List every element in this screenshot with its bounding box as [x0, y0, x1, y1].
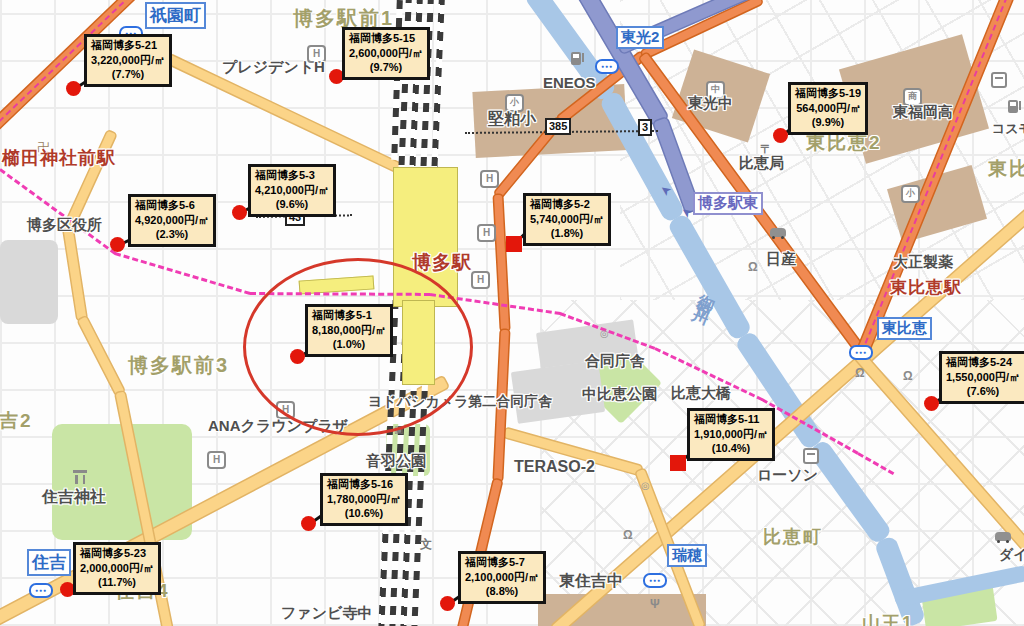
subway-line	[115, 252, 251, 295]
price-point-marker[interactable]	[773, 128, 788, 143]
station-name-label: 東比恵駅	[890, 276, 962, 299]
callout-change-rate: (11.7%)	[80, 575, 154, 590]
poi-label: ダイハツ	[999, 546, 1024, 564]
callout-price: 2,600,000円/㎡	[349, 46, 423, 61]
station-badge-東光2[interactable]: 東光2	[616, 26, 664, 49]
station-badge-祇園町[interactable]: 祇園町	[145, 2, 206, 29]
callout-price: 1,550,000円/㎡	[946, 370, 1020, 385]
building-block	[0, 240, 58, 324]
area-name-label: 比恵町	[763, 525, 823, 549]
area-name-label: 東比恵	[988, 156, 1024, 182]
river-segment	[666, 213, 752, 342]
car-dealer-icon	[770, 228, 786, 237]
restaurant-icon: Ψ	[650, 597, 660, 611]
callout-site-id: 福岡博多5-11	[694, 412, 768, 427]
land-price-callout[interactable]: 福岡博多5-19564,000円/㎡(9.9%)	[788, 82, 868, 135]
hotel-icon: H	[471, 271, 490, 289]
poi-label: プレジデントH	[222, 58, 325, 77]
callout-site-id: 福岡博多5-1	[312, 308, 386, 323]
callout-price: 564,000円/㎡	[795, 101, 861, 116]
traffic-light-icon	[595, 59, 619, 74]
landmark-icon: ◎	[641, 480, 650, 491]
callout-change-rate: (8.8%)	[465, 584, 539, 599]
callout-change-rate: (10.4%)	[694, 441, 768, 456]
land-price-callout[interactable]: 福岡博多5-34,210,000円/㎡(9.6%)	[248, 164, 336, 217]
land-price-callout[interactable]: 福岡博多5-241,550,000円/㎡(7.6%)	[939, 351, 1024, 404]
callout-site-id: 福岡博多5-16	[327, 477, 401, 492]
poi-label: 比恵局	[739, 154, 784, 173]
land-price-callout[interactable]: 福岡博多5-18,180,000円/㎡(1.0%)	[305, 304, 393, 357]
station-badge-東比恵[interactable]: 東比恵	[877, 317, 932, 340]
route-shield: 3	[638, 119, 652, 136]
callout-site-id: 福岡博多5-15	[349, 31, 423, 46]
land-price-callout[interactable]: 福岡博多5-72,100,000円/㎡(8.8%)	[458, 551, 546, 604]
poi-label: 東光中	[688, 94, 733, 113]
land-price-callout[interactable]: 福岡博多5-232,000,000円/㎡(11.7%)	[73, 542, 161, 595]
callout-change-rate: (9.9%)	[795, 115, 861, 130]
callout-change-rate: (7.7%)	[91, 67, 165, 82]
poi-label: 音羽公園	[366, 452, 426, 471]
callout-site-id: 福岡博多5-24	[946, 355, 1020, 370]
callout-change-rate: (10.6%)	[327, 506, 401, 521]
landmark-icon: ◎	[600, 328, 609, 339]
price-point-marker[interactable]	[924, 396, 939, 411]
poi-label: 比恵大橋	[671, 384, 731, 403]
price-point-marker[interactable]	[301, 516, 316, 531]
poi-label: 合同庁舎	[585, 352, 645, 371]
callout-price: 4,920,000円/㎡	[135, 213, 209, 228]
poi-label: 博多区役所	[27, 216, 102, 235]
shop-icon: Ω	[855, 366, 865, 380]
traffic-light-icon	[849, 345, 873, 360]
callout-price: 2,000,000円/㎡	[80, 561, 154, 576]
callout-change-rate: (1.8%)	[530, 226, 604, 241]
school-symbol-icon: 文	[420, 536, 432, 553]
callout-price: 1,780,000円/㎡	[327, 492, 401, 507]
car-dealer-icon	[995, 532, 1011, 541]
shrine-torii-icon	[73, 470, 87, 484]
price-point-marker[interactable]	[506, 236, 522, 252]
land-price-callout[interactable]: 福岡博多5-213,220,000円/㎡(7.7%)	[84, 34, 172, 87]
callout-site-id: 福岡博多5-21	[91, 38, 165, 53]
poi-label: ファンビ寺中	[281, 604, 372, 623]
station-badge-博多駅東[interactable]: 博多駅東	[693, 192, 763, 215]
poi-label: ENEOS	[543, 74, 596, 91]
price-point-marker[interactable]	[440, 596, 455, 611]
price-point-marker[interactable]	[670, 455, 686, 471]
land-price-map[interactable]: 祇園町東光2博多駅東東比恵瑞穂住吉櫛田神社前駅博多駅東比恵駅博多駅前1博多駅前3…	[0, 0, 1024, 626]
convenience-store-icon	[991, 72, 1007, 88]
callout-price: 5,740,000円/㎡	[530, 212, 604, 227]
callout-price: 8,180,000円/㎡	[312, 323, 386, 338]
area-name-label: 山王1	[862, 611, 914, 626]
convenience-store-icon	[803, 448, 819, 464]
price-point-marker[interactable]	[66, 81, 81, 96]
traffic-light-icon	[29, 583, 53, 598]
poi-label: 中比恵公園	[582, 385, 657, 404]
area-name-label: 博多駅前3	[128, 352, 229, 379]
major-road-segment	[78, 316, 124, 395]
callout-change-rate: (2.3%)	[135, 227, 209, 242]
price-point-marker[interactable]	[232, 205, 247, 220]
poi-label: 住吉神社	[42, 487, 106, 508]
land-price-callout[interactable]: 福岡博多5-161,780,000円/㎡(10.6%)	[320, 473, 408, 526]
callout-price: 2,100,000円/㎡	[465, 570, 539, 585]
poi-label: コスモ	[992, 120, 1024, 138]
shop-icon: Ω	[623, 528, 633, 542]
hotel-icon: H	[480, 170, 499, 188]
callout-site-id: 福岡博多5-2	[530, 197, 604, 212]
callout-price: 3,220,000円/㎡	[91, 53, 165, 68]
poi-label: 東福岡高	[893, 103, 953, 122]
station-badge-瑞穂[interactable]: 瑞穂	[667, 544, 707, 567]
land-price-callout[interactable]: 福岡博多5-64,920,000円/㎡(2.3%)	[128, 194, 216, 247]
traffic-light-icon	[643, 573, 667, 588]
land-price-callout[interactable]: 福岡博多5-152,600,000円/㎡(9.7%)	[342, 27, 430, 80]
major-road-segment	[64, 227, 87, 319]
land-price-callout[interactable]: 福岡博多5-111,910,000円/㎡(10.4%)	[687, 408, 775, 461]
callout-site-id: 福岡博多5-19	[795, 86, 861, 101]
national-route-segment	[494, 195, 509, 331]
gas-station-icon	[1008, 100, 1018, 113]
poi-label: 堅粕小	[488, 109, 536, 130]
callout-change-rate: (9.6%)	[255, 197, 329, 212]
callout-price: 1,910,000円/㎡	[694, 427, 768, 442]
poi-label: 東住吉中	[559, 571, 623, 592]
callout-site-id: 福岡博多5-6	[135, 198, 209, 213]
callout-change-rate: (7.6%)	[946, 384, 1020, 399]
hotel-icon: H	[477, 224, 496, 242]
poi-label: TERASO-2	[514, 458, 595, 476]
route-shield: 385	[545, 118, 571, 135]
land-price-callout[interactable]: 福岡博多5-25,740,000円/㎡(1.8%)	[523, 193, 611, 246]
callout-price: 4,210,000円/㎡	[255, 183, 329, 198]
area-name-label: 住吉2	[0, 408, 33, 434]
poi-label: ローソン	[757, 466, 818, 485]
callout-site-id: 福岡博多5-3	[255, 168, 329, 183]
station-name-label: 櫛田神社前駅	[2, 146, 116, 170]
callout-site-id: 福岡博多5-23	[80, 546, 154, 561]
callout-site-id: 福岡博多5-7	[465, 555, 539, 570]
station-badge-住吉[interactable]: 住吉	[27, 549, 71, 576]
poi-label: 大正製薬	[893, 253, 953, 272]
price-point-marker[interactable]	[110, 237, 125, 252]
shop-icon: Ω	[903, 369, 913, 383]
subway-line	[857, 452, 894, 475]
school-badge-icon: 小	[901, 185, 920, 203]
hotel-icon: H	[207, 451, 226, 469]
poi-label: 日産	[766, 250, 796, 269]
callout-change-rate: (1.0%)	[312, 337, 386, 352]
gas-station-icon	[571, 52, 581, 65]
shop-icon: Ω	[748, 260, 758, 274]
callout-change-rate: (9.7%)	[349, 60, 423, 75]
